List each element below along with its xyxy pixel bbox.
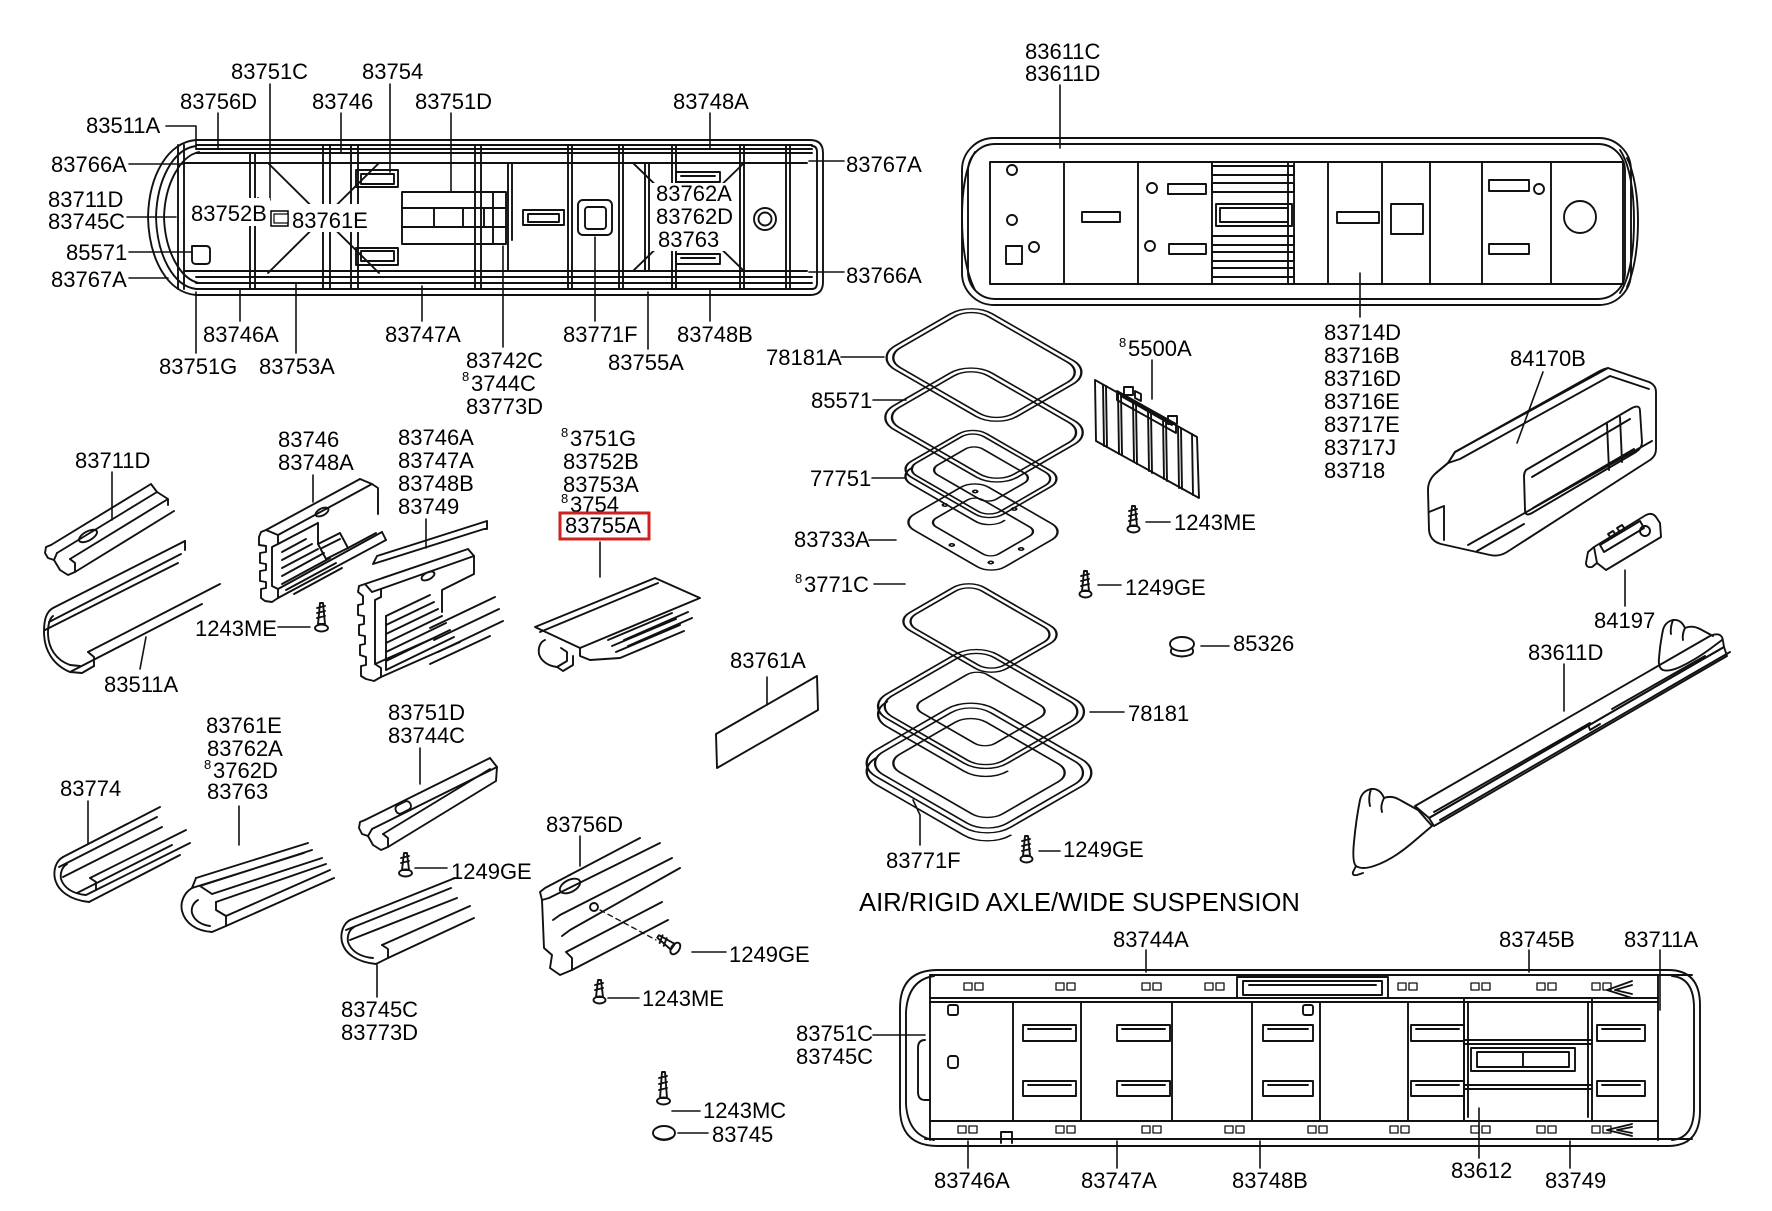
svg-text:83746A: 83746A (934, 1168, 1010, 1193)
svg-text:83742C: 83742C (466, 348, 543, 373)
svg-text:83612: 83612 (1451, 1158, 1512, 1183)
svg-text:1249GE: 1249GE (729, 942, 810, 967)
svg-text:83754: 83754 (362, 59, 423, 84)
svg-text:83748B: 83748B (398, 471, 474, 496)
svg-text:8: 8 (561, 425, 568, 440)
svg-text:83746: 83746 (278, 427, 339, 452)
svg-text:84170B: 84170B (1510, 346, 1586, 371)
svg-text:3771C: 3771C (804, 572, 869, 597)
svg-text:83762D: 83762D (656, 204, 733, 229)
svg-text:8: 8 (204, 757, 211, 772)
svg-text:83746A: 83746A (398, 425, 474, 450)
svg-text:83748B: 83748B (1232, 1168, 1308, 1193)
svg-text:83747A: 83747A (1081, 1168, 1157, 1193)
svg-text:1243MC: 1243MC (703, 1098, 786, 1123)
svg-text:83718: 83718 (1324, 458, 1385, 483)
svg-text:83761E: 83761E (292, 208, 368, 233)
svg-text:1249GE: 1249GE (1125, 575, 1206, 600)
svg-text:83716D: 83716D (1324, 366, 1401, 391)
svg-text:83773D: 83773D (341, 1020, 418, 1045)
svg-text:83711D: 83711D (75, 448, 150, 473)
svg-text:83745C: 83745C (48, 209, 125, 234)
svg-text:8: 8 (462, 369, 469, 384)
svg-text:83773D: 83773D (466, 394, 543, 419)
svg-text:83763: 83763 (658, 227, 719, 252)
svg-text:83751D: 83751D (388, 700, 465, 725)
svg-text:84197: 84197 (1594, 608, 1655, 633)
svg-text:83749: 83749 (1545, 1168, 1606, 1193)
svg-text:83744A: 83744A (1113, 927, 1189, 952)
svg-text:83716B: 83716B (1324, 343, 1400, 368)
svg-text:83748A: 83748A (673, 89, 749, 114)
svg-text:83745C: 83745C (796, 1044, 873, 1069)
svg-text:1243ME: 1243ME (642, 986, 724, 1011)
svg-text:78181A: 78181A (766, 345, 842, 370)
svg-text:83744C: 83744C (388, 723, 465, 748)
svg-text:83511A: 83511A (104, 672, 179, 697)
svg-text:83711A: 83711A (1624, 927, 1699, 952)
svg-text:83733A: 83733A (794, 527, 870, 552)
svg-text:83751C: 83751C (796, 1021, 873, 1046)
svg-text:8: 8 (795, 571, 802, 586)
svg-text:83771F: 83771F (563, 322, 638, 347)
svg-text:83511A: 83511A (86, 113, 161, 138)
svg-text:83756D: 83756D (180, 89, 257, 114)
svg-text:83747A: 83747A (385, 322, 461, 347)
svg-text:5500A: 5500A (1128, 336, 1192, 361)
svg-text:85571: 85571 (66, 240, 127, 265)
svg-text:83745B: 83745B (1499, 927, 1575, 952)
svg-text:1249GE: 1249GE (1063, 837, 1144, 862)
svg-text:83749: 83749 (398, 494, 459, 519)
svg-text:83745C: 83745C (341, 997, 418, 1022)
svg-text:83751C: 83751C (231, 59, 308, 84)
svg-text:83745: 83745 (712, 1122, 773, 1147)
svg-text:83761A: 83761A (730, 648, 806, 673)
svg-text:83752B: 83752B (563, 449, 639, 474)
svg-text:83755A: 83755A (608, 350, 684, 375)
svg-text:85571: 85571 (811, 388, 872, 413)
svg-text:83767A: 83767A (51, 267, 127, 292)
svg-text:3744C: 3744C (471, 371, 536, 396)
svg-text:83771F: 83771F (886, 848, 961, 873)
svg-text:83751D: 83751D (415, 89, 492, 114)
svg-text:8: 8 (1119, 335, 1126, 350)
svg-text:8: 8 (561, 491, 568, 506)
svg-text:83748B: 83748B (677, 322, 753, 347)
svg-text:83766A: 83766A (51, 152, 127, 177)
svg-text:83714D: 83714D (1324, 320, 1401, 345)
svg-text:83774: 83774 (60, 776, 121, 801)
svg-text:77751: 77751 (810, 466, 871, 491)
svg-text:3751G: 3751G (570, 426, 636, 451)
svg-text:85326: 85326 (1233, 631, 1294, 656)
svg-text:83756D: 83756D (546, 812, 623, 837)
svg-text:83755A: 83755A (565, 513, 641, 538)
svg-text:83752B: 83752B (191, 201, 267, 226)
svg-text:83717E: 83717E (1324, 412, 1400, 437)
svg-text:83753A: 83753A (259, 354, 335, 379)
svg-text:83717J: 83717J (1324, 435, 1396, 460)
svg-text:78181: 78181 (1128, 701, 1189, 726)
svg-text:83747A: 83747A (398, 448, 474, 473)
svg-text:83766A: 83766A (846, 263, 922, 288)
svg-text:83751G: 83751G (159, 354, 237, 379)
svg-text:83716E: 83716E (1324, 389, 1400, 414)
svg-text:AIR/RIGID AXLE/WIDE SUSPENSION: AIR/RIGID AXLE/WIDE SUSPENSION (859, 889, 1300, 917)
svg-text:83763: 83763 (207, 779, 268, 804)
svg-text:83611D: 83611D (1528, 640, 1603, 665)
svg-text:83746A: 83746A (203, 322, 279, 347)
svg-text:83746: 83746 (312, 89, 373, 114)
svg-text:83767A: 83767A (846, 152, 922, 177)
svg-text:83761E: 83761E (206, 713, 282, 738)
svg-text:83611D: 83611D (1025, 61, 1100, 86)
svg-text:83762A: 83762A (656, 181, 732, 206)
svg-text:1243ME: 1243ME (1174, 510, 1256, 535)
svg-text:83748A: 83748A (278, 450, 354, 475)
svg-text:1243ME: 1243ME (195, 616, 277, 641)
svg-text:1249GE: 1249GE (451, 859, 532, 884)
